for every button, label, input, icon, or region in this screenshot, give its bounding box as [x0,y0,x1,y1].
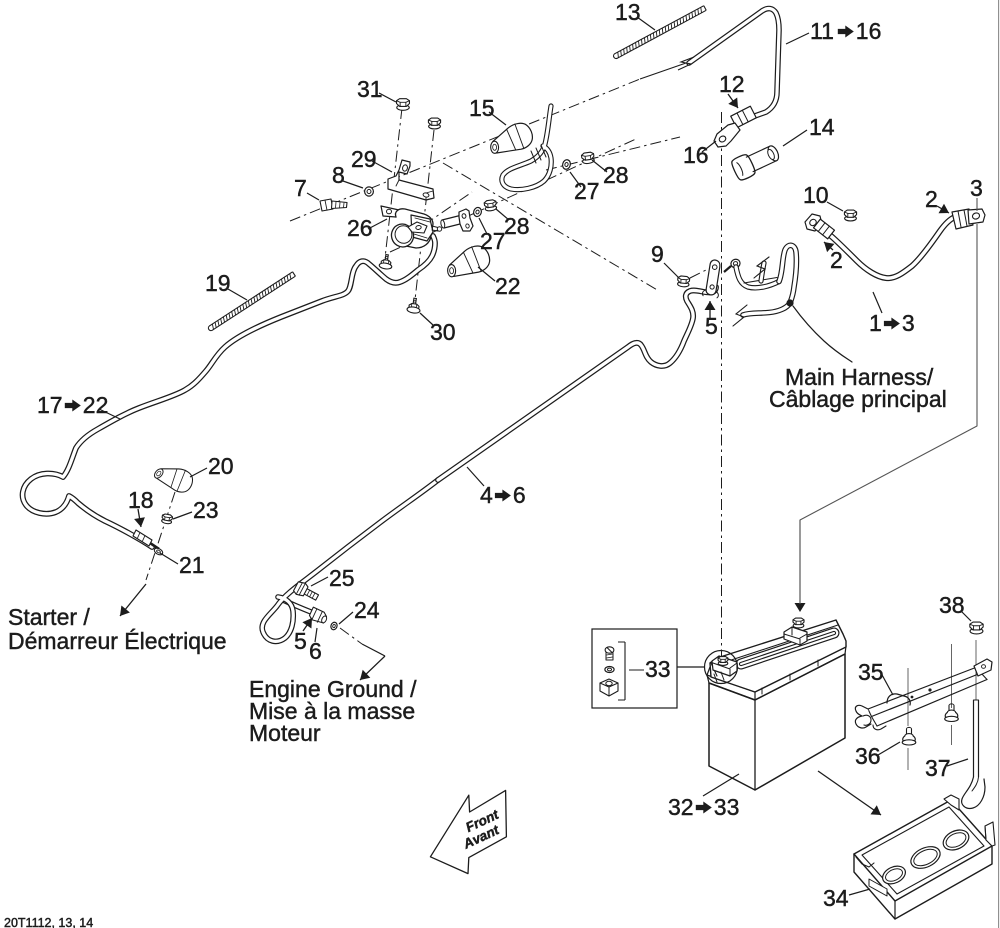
svg-text:2: 2 [830,247,843,273]
svg-text:Démarreur Électrique: Démarreur Électrique [8,628,227,654]
svg-text:15: 15 [469,95,495,121]
svg-text:3: 3 [970,175,983,201]
svg-text:35: 35 [858,659,884,685]
svg-text:5: 5 [705,313,718,339]
svg-text:33: 33 [714,794,740,820]
svg-text:13: 13 [615,0,641,25]
svg-text:1: 1 [869,310,882,336]
svg-text:28: 28 [504,213,530,239]
svg-text:2: 2 [925,186,938,212]
svg-text:8: 8 [332,162,345,188]
svg-text:38: 38 [939,592,965,618]
svg-text:37: 37 [925,755,951,781]
svg-text:3: 3 [902,310,915,336]
svg-text:6: 6 [513,482,526,508]
svg-text:18: 18 [128,487,154,513]
svg-text:Moteur: Moteur [249,720,321,746]
svg-text:34: 34 [823,885,849,911]
svg-text:19: 19 [205,270,231,296]
svg-text:17: 17 [37,392,63,418]
svg-text:7: 7 [294,175,307,201]
svg-text:11: 11 [810,18,834,44]
svg-text:29: 29 [351,146,377,172]
svg-text:Câblage principal: Câblage principal [769,386,947,412]
svg-text:28: 28 [603,162,629,188]
svg-text:25: 25 [329,565,355,591]
svg-text:Starter /: Starter / [8,604,90,630]
svg-text:10: 10 [803,182,829,208]
svg-text:16: 16 [683,142,709,168]
svg-text:20: 20 [208,453,234,479]
svg-text:32: 32 [668,794,694,820]
svg-text:23: 23 [193,497,219,523]
svg-text:33: 33 [645,656,671,682]
svg-text:27: 27 [480,228,506,254]
svg-text:9: 9 [651,241,664,267]
svg-text:30: 30 [430,319,456,345]
svg-text:5: 5 [294,628,307,654]
svg-text:12: 12 [719,71,745,97]
svg-text:24: 24 [354,597,380,623]
svg-text:14: 14 [809,114,835,140]
svg-text:16: 16 [856,18,882,44]
svg-text:22: 22 [495,273,521,299]
svg-text:20T1112, 13, 14: 20T1112, 13, 14 [4,916,93,928]
svg-text:21: 21 [179,552,205,578]
svg-text:31: 31 [357,76,383,102]
svg-text:4: 4 [480,482,493,508]
svg-text:36: 36 [855,743,881,769]
svg-text:22: 22 [83,392,109,418]
